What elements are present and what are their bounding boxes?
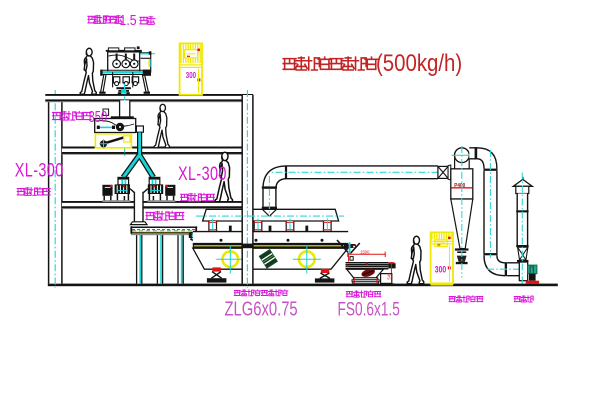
svg-text:1.5: 1.5 bbox=[120, 12, 137, 28]
svg-text:1500: 1500 bbox=[360, 249, 370, 254]
svg-text:XL-300: XL-300 bbox=[15, 160, 64, 181]
svg-text:XL-300: XL-300 bbox=[178, 163, 227, 184]
svg-text:P400: P400 bbox=[454, 183, 465, 189]
svg-text:300: 300 bbox=[435, 265, 447, 275]
svg-text:(500kg/h): (500kg/h) bbox=[376, 49, 462, 76]
svg-text:ZLG6x0.75: ZLG6x0.75 bbox=[225, 297, 298, 320]
svg-text:350: 350 bbox=[89, 107, 108, 126]
svg-text:FS0.6x1.5: FS0.6x1.5 bbox=[338, 298, 400, 320]
svg-text:545: 545 bbox=[386, 272, 391, 279]
svg-text:300: 300 bbox=[186, 70, 196, 80]
